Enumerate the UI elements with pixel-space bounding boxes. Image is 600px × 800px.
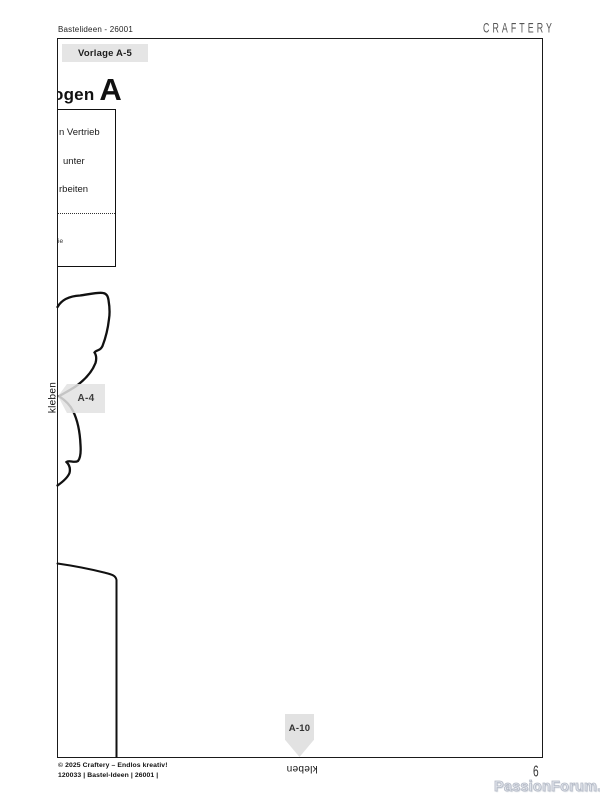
sheet-heading-letter: A (99, 72, 121, 108)
glue-label-bottom: kleben (272, 761, 332, 774)
info-box: n Vertrieb unter rbeiten ie (57, 109, 116, 267)
info-box-line: rbeiten (59, 184, 88, 195)
glue-label-left: kleben (48, 368, 61, 428)
brand-logo: CRAFTERY (483, 20, 555, 36)
footer-code: 120033 | Bastel-Ideen | 26001 | (58, 771, 168, 781)
page-frame: Vorlage A-5 ogen A n Vertrieb unter rbei… (57, 38, 543, 758)
footer: © 2025 Craftery – Endlos kreativ! 120033… (58, 761, 168, 780)
watermark: PassionForum.ru (494, 779, 600, 795)
info-box-line: n Vertrieb (59, 127, 100, 138)
sheet-heading: ogen A (57, 72, 122, 108)
doc-reference: Bastelideen - 26001 (58, 25, 133, 34)
info-box-line: unter (63, 156, 85, 167)
dotted-divider (57, 213, 115, 214)
sheet-heading-fragment: ogen (57, 85, 94, 105)
footer-copyright: © 2025 Craftery – Endlos kreativ! (58, 761, 168, 771)
vorlage-tag: Vorlage A-5 (62, 44, 148, 62)
part-label-a4: A-4 (58, 384, 105, 413)
info-box-small-line: ie (58, 238, 63, 245)
